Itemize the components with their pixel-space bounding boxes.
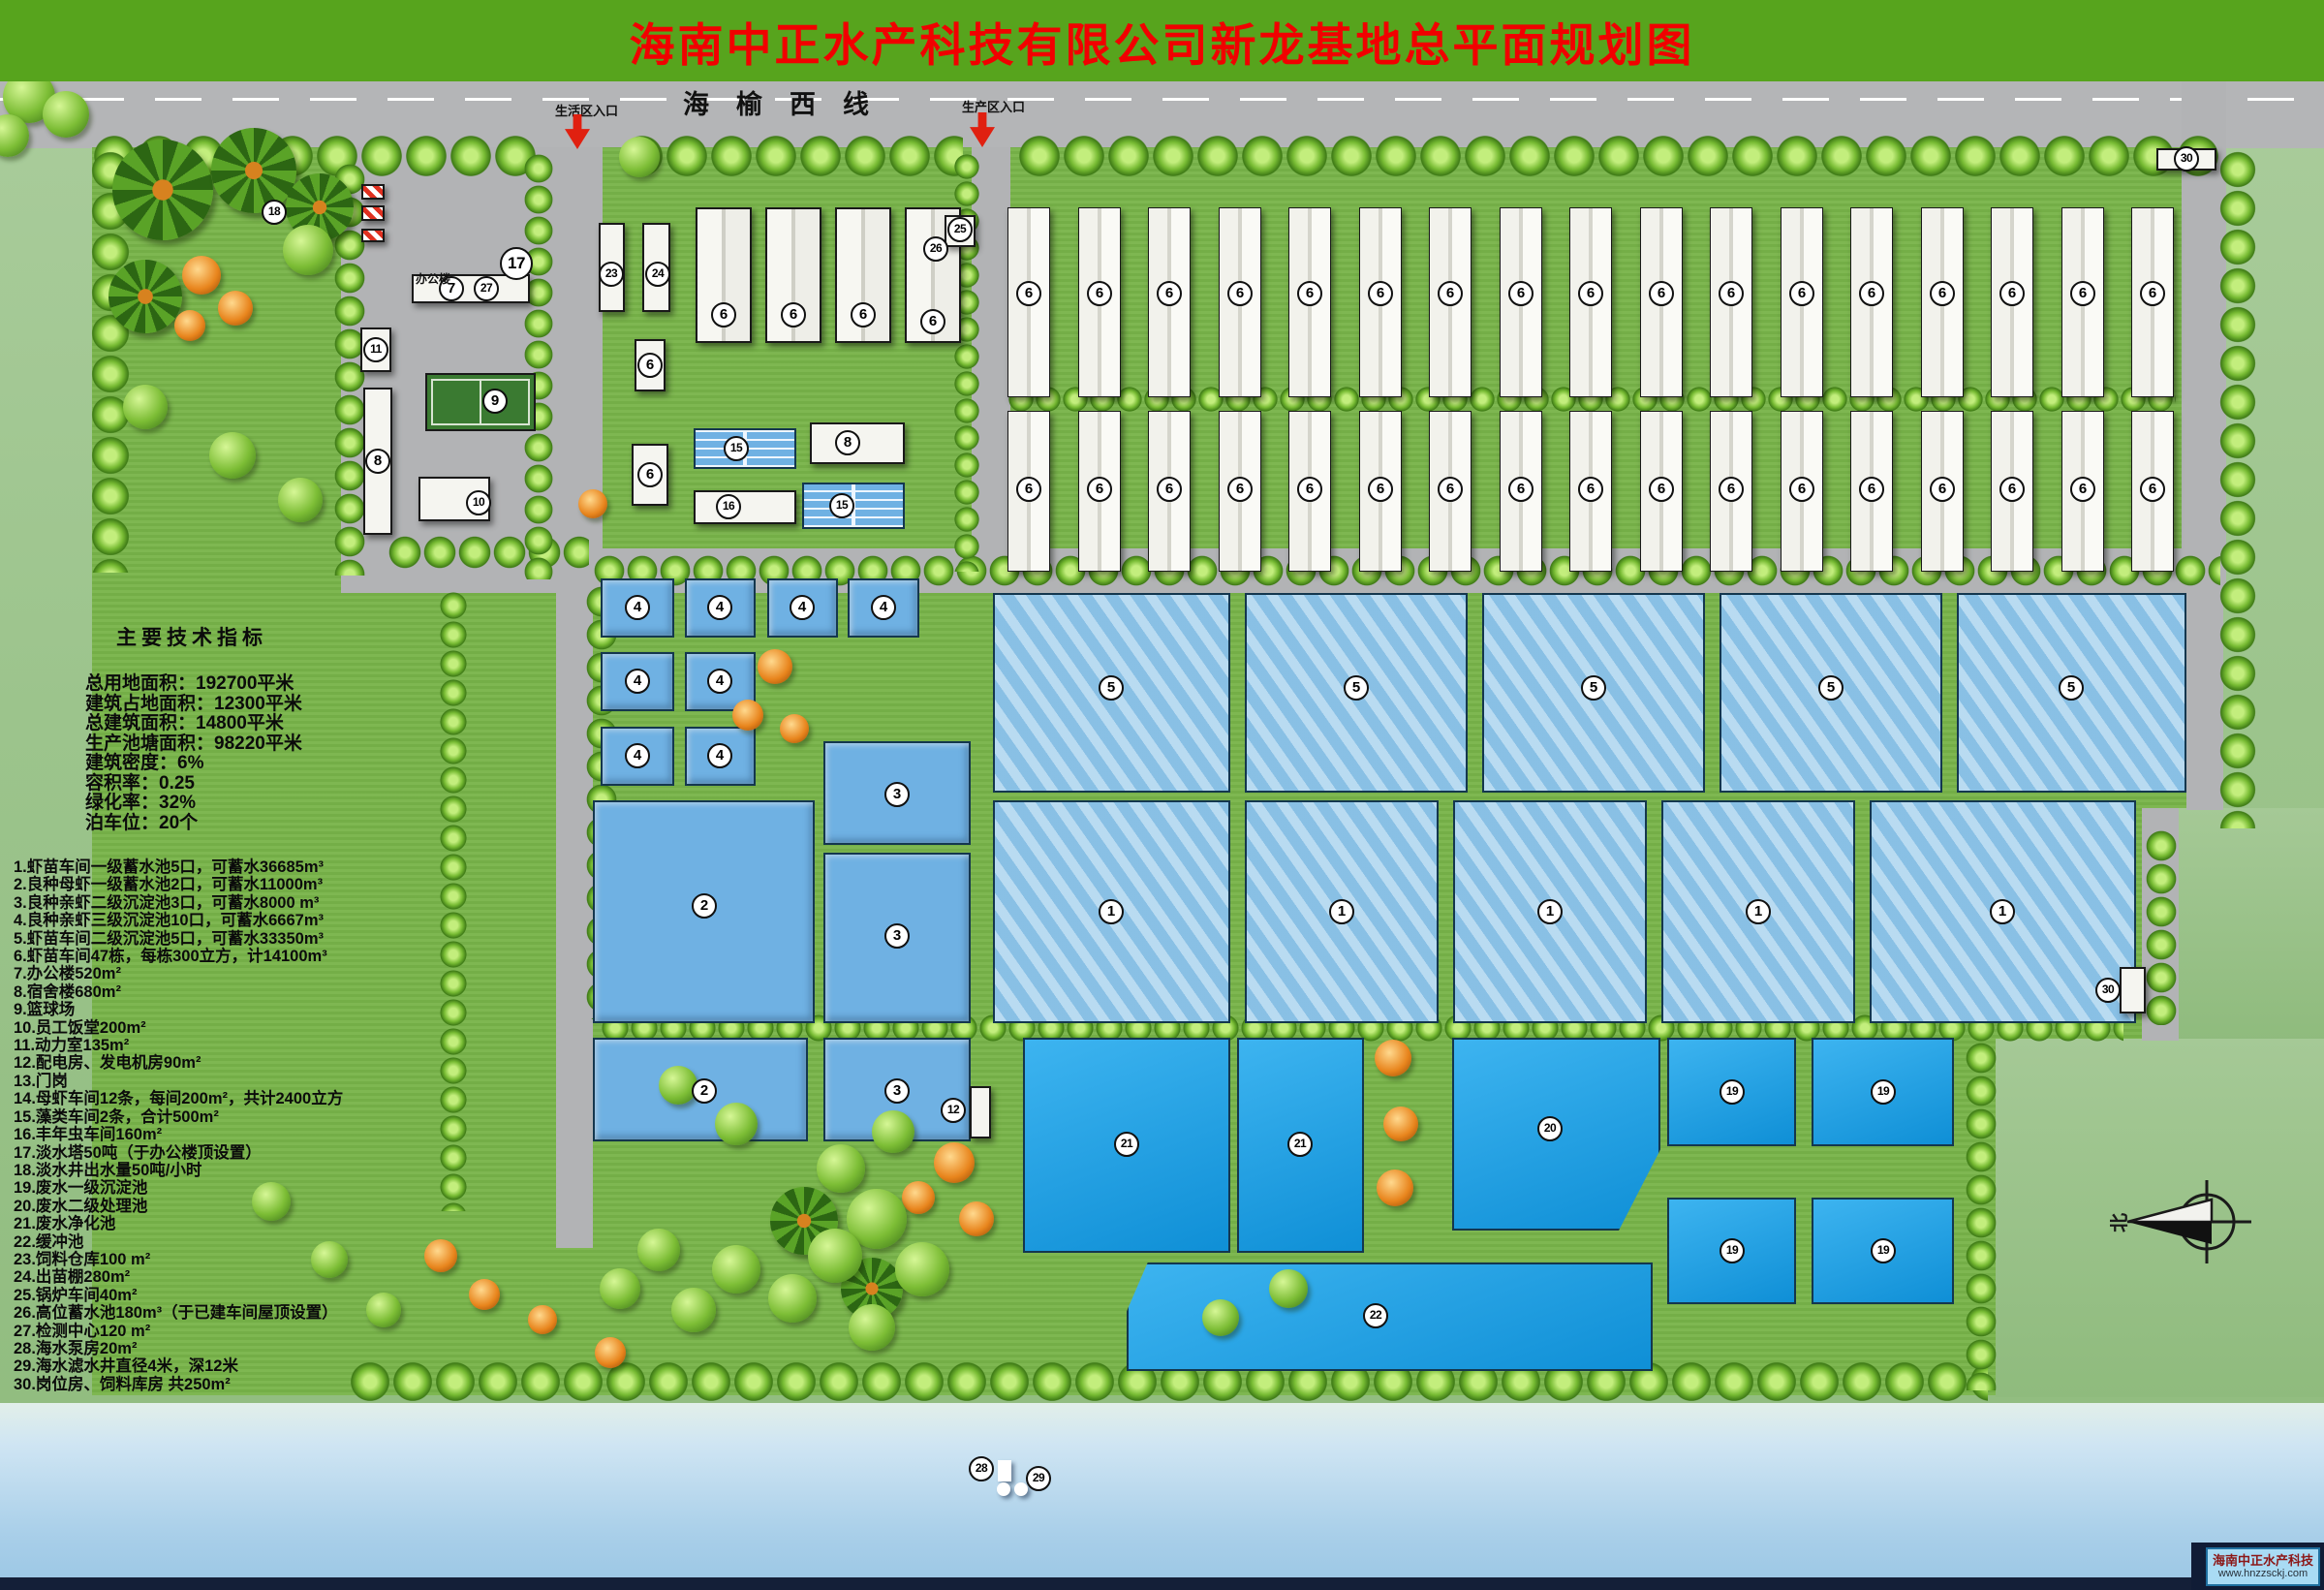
- badge-19: 19: [1720, 1079, 1745, 1105]
- tree-icon: [1202, 1299, 1239, 1336]
- badge-16: 16: [716, 494, 741, 519]
- legend-item: 12.配电房、发电机房90m²: [14, 1054, 343, 1072]
- legend-item: 23.饲料仓库100 m²: [14, 1251, 343, 1268]
- badge-6: 6: [637, 353, 663, 378]
- tree-icon: [578, 489, 607, 518]
- tree-icon: [768, 1274, 817, 1323]
- legend-item: 28.海水泵房20m²: [14, 1340, 343, 1357]
- tree-icon: [732, 700, 763, 731]
- legend-item: 14.母虾车间12条，每间200m²，共计2400立方: [14, 1090, 343, 1107]
- tree-row: [2145, 829, 2178, 1025]
- tech-indicator-line: 建筑占地面积：12300平米: [85, 695, 302, 715]
- badge-4: 4: [707, 595, 732, 620]
- tree-icon: [1377, 1169, 1413, 1206]
- legend-item: 18.淡水井出水量50吨/小时: [14, 1162, 343, 1179]
- badge-21: 21: [1114, 1132, 1139, 1157]
- tree-icon: [817, 1144, 865, 1193]
- legend-item: 29.海水滤水井直径4米，深12米: [14, 1357, 343, 1375]
- badge-6: 6: [1087, 281, 1112, 306]
- legend-item: 13.门岗: [14, 1073, 343, 1090]
- legend-item: 2.良种母虾一级蓄水池2口，可蓄水11000m³: [14, 876, 343, 893]
- tree-icon: [637, 1229, 680, 1271]
- tree-row: [1017, 134, 2220, 178]
- badge-6: 6: [1227, 281, 1253, 306]
- tech-indicator-line: 生产池塘面积：98220平米: [85, 734, 302, 755]
- seawater-pump-house: [998, 1460, 1011, 1481]
- tree-icon: [174, 310, 205, 341]
- badge-27: 27: [474, 276, 499, 301]
- badge-6: 6: [1930, 281, 1955, 306]
- tree-icon: [595, 1337, 626, 1368]
- tech-indicator-line: 绿化率：32%: [85, 794, 302, 814]
- badge-1: 1: [1329, 899, 1354, 924]
- badge-6: 6: [1859, 281, 1884, 306]
- tree-icon: [182, 256, 221, 295]
- building: [970, 1086, 991, 1138]
- tech-indicator-line: 容积率：0.25: [85, 774, 302, 795]
- edge-step-right: [2179, 808, 2324, 1041]
- tree-icon: [218, 291, 253, 326]
- badge-6: 6: [1087, 477, 1112, 502]
- badge-4: 4: [707, 669, 732, 694]
- tree-icon: [1383, 1107, 1418, 1141]
- badge-6: 6: [1859, 477, 1884, 502]
- badge-30: 30: [2174, 146, 2199, 171]
- badge-1: 1: [1746, 899, 1771, 924]
- badge-3: 3: [884, 782, 910, 807]
- tree-icon: [808, 1229, 862, 1283]
- badge-6: 6: [851, 302, 876, 327]
- badge-6: 6: [1578, 281, 1603, 306]
- palm-tree-icon: [112, 140, 213, 240]
- badge-9: 9: [482, 389, 508, 414]
- badge-8: 8: [835, 430, 860, 455]
- badge-6: 6: [1508, 281, 1534, 306]
- tree-icon: [600, 1268, 640, 1309]
- badge-12: 12: [941, 1098, 966, 1123]
- badge-25: 25: [947, 217, 973, 242]
- badge-6: 6: [1789, 477, 1814, 502]
- tree-icon: [528, 1305, 557, 1334]
- highway-name-label: 海榆西线: [683, 83, 896, 121]
- badge-4: 4: [625, 743, 650, 768]
- legend-item: 7.办公楼520m²: [14, 965, 343, 982]
- legend-item: 20.废水二级处理池: [14, 1198, 343, 1215]
- badge-23: 23: [599, 262, 624, 287]
- badge-6: 6: [2070, 281, 2095, 306]
- page-title: 海南中正水产科技有限公司新龙基地总平面规划图: [630, 8, 1695, 75]
- badge-6: 6: [1227, 477, 1253, 502]
- badge-22: 22: [1363, 1303, 1388, 1328]
- badge-6: 6: [1930, 477, 1955, 502]
- tree-icon: [934, 1142, 975, 1183]
- tree-icon: [849, 1304, 895, 1351]
- tree-icon: [780, 714, 809, 743]
- badge-30: 30: [2095, 978, 2121, 1003]
- map-label: 办公楼: [416, 270, 450, 287]
- legend-item: 22.缓冲池: [14, 1233, 343, 1251]
- compass-icon: 北: [2110, 1178, 2255, 1265]
- gate-post: [361, 229, 385, 242]
- tree-row: [620, 134, 963, 178]
- legend-item: 17.淡水塔50吨（于办公楼顶设置）: [14, 1144, 343, 1162]
- legend-item: 15.藻类车间2条，合计500m²: [14, 1108, 343, 1126]
- legend-item: 24.出苗棚280m²: [14, 1268, 343, 1286]
- tree-row: [2218, 150, 2257, 828]
- badge-6: 6: [1578, 477, 1603, 502]
- badge-4: 4: [625, 669, 650, 694]
- legend-item: 21.废水净化池: [14, 1215, 343, 1232]
- building: [2120, 967, 2146, 1013]
- tree-row: [1965, 1042, 1998, 1390]
- tree-icon: [469, 1279, 500, 1310]
- badge-19: 19: [1720, 1238, 1745, 1263]
- tree-icon: [43, 91, 89, 138]
- tech-indicator-line: 泊车位：20个: [85, 814, 302, 834]
- technical-indicators-panel: 主要技术指标 总用地面积：192700平米建筑占地面积：12300平米总建筑面积…: [85, 622, 302, 833]
- legend-item: 19.废水一级沉淀池: [14, 1179, 343, 1197]
- legend-item: 6.虾苗车间47栋，每栋300立方，计14100m³: [14, 948, 343, 965]
- seawater-filter-well: [997, 1482, 1010, 1496]
- badge-6: 6: [1999, 477, 2025, 502]
- badge-29: 29: [1026, 1466, 1051, 1491]
- badge-26: 26: [923, 236, 948, 262]
- badge-6: 6: [1438, 477, 1463, 502]
- living-entrance-label: 生活区入口: [555, 101, 618, 119]
- tree-icon: [278, 478, 323, 522]
- site-plan-canvas: 4444444433322151555555111112121201919191…: [0, 0, 2324, 1590]
- badge-6: 6: [781, 302, 806, 327]
- legend-item: 4.良种亲虾三级沉淀池10口，可蓄水6667m³: [14, 912, 343, 929]
- badge-17: 17: [500, 247, 533, 280]
- badge-6: 6: [1719, 281, 1744, 306]
- tree-icon: [424, 1239, 457, 1272]
- tree-icon: [283, 225, 333, 275]
- badge-6: 6: [1789, 281, 1814, 306]
- badge-6: 6: [1649, 281, 1674, 306]
- bottom-border-bar: [0, 1577, 2324, 1590]
- legend-item: 3.良种亲虾二级沉淀池3口，可蓄水8000 m³: [14, 894, 343, 912]
- badge-4: 4: [790, 595, 815, 620]
- badge-4: 4: [871, 595, 896, 620]
- badge-1: 1: [1537, 899, 1563, 924]
- legend-item: 8.宿舍楼680m²: [14, 983, 343, 1001]
- badge-10: 10: [466, 490, 491, 515]
- badge-5: 5: [1344, 675, 1369, 701]
- compass-north-label: 北: [2110, 1213, 2130, 1232]
- badge-20: 20: [1537, 1116, 1563, 1141]
- legend-item: 5.虾苗车间二级沉淀池5口，可蓄水33350m³: [14, 930, 343, 948]
- badge-1: 1: [1099, 899, 1124, 924]
- badge-6: 6: [1157, 477, 1182, 502]
- badge-2: 2: [692, 1078, 717, 1104]
- tech-indicator-line: 总建筑面积：14800平米: [85, 714, 302, 734]
- road-centerline: [0, 98, 2324, 101]
- badge-1: 1: [1990, 899, 2015, 924]
- badge-3: 3: [884, 1078, 910, 1104]
- badge-6: 6: [637, 462, 663, 487]
- badge-5: 5: [1581, 675, 1606, 701]
- badge-6: 6: [1438, 281, 1463, 306]
- plan-map: 4444444433322151555555111112121201919191…: [0, 0, 2324, 1590]
- tree-icon: [123, 385, 168, 429]
- badge-5: 5: [2059, 675, 2084, 701]
- badge-6: 6: [1999, 281, 2025, 306]
- tree-icon: [619, 137, 660, 177]
- badge-18: 18: [262, 200, 287, 225]
- badge-6: 6: [1649, 477, 1674, 502]
- building: [694, 490, 796, 524]
- tree-icon: [209, 432, 256, 479]
- badge-6: 6: [1016, 281, 1041, 306]
- tree-icon: [758, 649, 792, 684]
- tree-row: [439, 591, 468, 1211]
- tree-icon: [366, 1293, 401, 1327]
- badge-4: 4: [707, 743, 732, 768]
- legend-item: 26.高位蓄水池180m³（于已建车间屋顶设置）: [14, 1304, 343, 1322]
- legend-panel: 1.虾苗车间一级蓄水池5口，可蓄水36685m³2.良种母虾一级蓄水池2口，可蓄…: [14, 858, 343, 1393]
- gate-post: [361, 184, 385, 200]
- badge-11: 11: [363, 337, 388, 362]
- tree-icon: [712, 1245, 760, 1294]
- badge-4: 4: [625, 595, 650, 620]
- badge-6: 6: [1016, 477, 1041, 502]
- badge-21: 21: [1287, 1132, 1313, 1157]
- watermark-url: www.hnzzsckj.com: [2218, 1568, 2308, 1580]
- legend-item: 30.岗位房、饲料库房 共250m²: [14, 1376, 343, 1393]
- legend-item: 27.检测中心120 m²: [14, 1323, 343, 1340]
- badge-15: 15: [724, 436, 749, 461]
- watermark-company: 海南中正水产科技: [2213, 1553, 2313, 1568]
- gate-post: [361, 205, 385, 221]
- badge-6: 6: [711, 302, 736, 327]
- badge-6: 6: [1719, 477, 1744, 502]
- legend-item: 9.篮球场: [14, 1001, 343, 1018]
- badge-8: 8: [365, 449, 390, 474]
- title-banner: 海南中正水产科技有限公司新龙基地总平面规划图: [0, 0, 2324, 81]
- badge-15: 15: [829, 493, 854, 518]
- seawater-filter-well: [1014, 1482, 1028, 1496]
- palm-tree-icon: [211, 128, 296, 213]
- tree-icon: [895, 1242, 949, 1296]
- tree-icon: [959, 1201, 994, 1236]
- badge-6: 6: [920, 309, 945, 334]
- badge-6: 6: [1368, 477, 1393, 502]
- tech-indicator-line: 总用地面积：192700平米: [85, 674, 302, 695]
- badge-5: 5: [1099, 675, 1124, 701]
- watermark: 海南中正水产科技 www.hnzzsckj.com: [2206, 1547, 2320, 1586]
- legend-item: 16.丰年虫车间160m²: [14, 1126, 343, 1143]
- badge-5: 5: [1818, 675, 1844, 701]
- tree-icon: [671, 1288, 716, 1332]
- tree-row: [523, 153, 554, 579]
- legend-item: 10.员工饭堂200m²: [14, 1019, 343, 1037]
- badge-6: 6: [2140, 281, 2165, 306]
- sea-area: 南中国海: [0, 1403, 2324, 1590]
- badge-6: 6: [1157, 281, 1182, 306]
- production-entrance-label: 生产区入口: [962, 97, 1025, 115]
- tree-icon: [1269, 1269, 1308, 1308]
- tree-icon: [715, 1103, 758, 1145]
- badge-6: 6: [2070, 477, 2095, 502]
- badge-6: 6: [2140, 477, 2165, 502]
- tree-icon: [902, 1181, 935, 1214]
- tech-indicator-line: 建筑密度：6%: [85, 754, 302, 774]
- basketball-court: [425, 373, 536, 431]
- technical-indicators-title: 主要技术指标: [116, 622, 302, 651]
- tree-icon: [872, 1110, 914, 1153]
- badge-6: 6: [1297, 281, 1322, 306]
- legend-item: 1.虾苗车间一级蓄水池5口，可蓄水36685m³: [14, 858, 343, 876]
- badge-6: 6: [1297, 477, 1322, 502]
- badge-6: 6: [1508, 477, 1534, 502]
- legend-item: 25.锅炉车间40m²: [14, 1287, 343, 1304]
- tree-icon: [1375, 1040, 1411, 1076]
- badge-28: 28: [969, 1456, 994, 1481]
- badge-2: 2: [692, 893, 717, 919]
- legend-item: 11.动力室135m²: [14, 1037, 343, 1054]
- badge-24: 24: [645, 262, 670, 287]
- palm-tree-icon: [108, 260, 182, 333]
- badge-19: 19: [1871, 1238, 1896, 1263]
- tree-row: [387, 535, 589, 570]
- badge-19: 19: [1871, 1079, 1896, 1105]
- badge-6: 6: [1368, 281, 1393, 306]
- badge-3: 3: [884, 923, 910, 949]
